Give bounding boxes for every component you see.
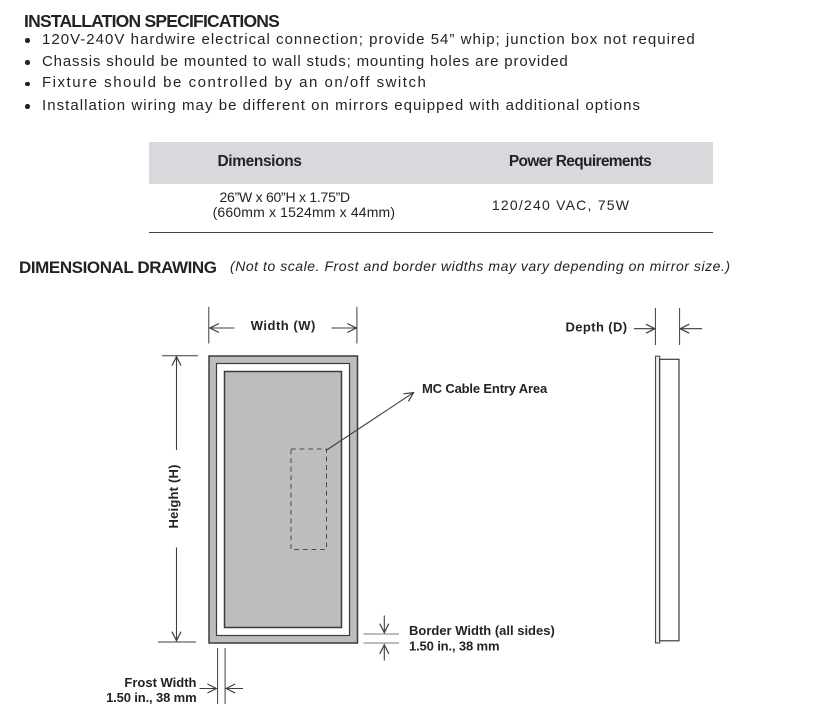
svg-text:1.50 in., 38 mm: 1.50 in., 38 mm — [409, 638, 499, 653]
svg-text:MC Cable Entry Area: MC Cable Entry Area — [422, 381, 548, 396]
svg-text:Border Width (all sides): Border Width (all sides) — [409, 623, 555, 638]
svg-text:Depth (D): Depth (D) — [566, 320, 628, 335]
svg-text:Width (W): Width (W) — [251, 318, 316, 333]
svg-text:Frost Width: Frost Width — [124, 675, 196, 690]
svg-text:1.50 in., 38 mm: 1.50 in., 38 mm — [106, 690, 196, 705]
svg-text:Height (H): Height (H) — [166, 464, 181, 528]
